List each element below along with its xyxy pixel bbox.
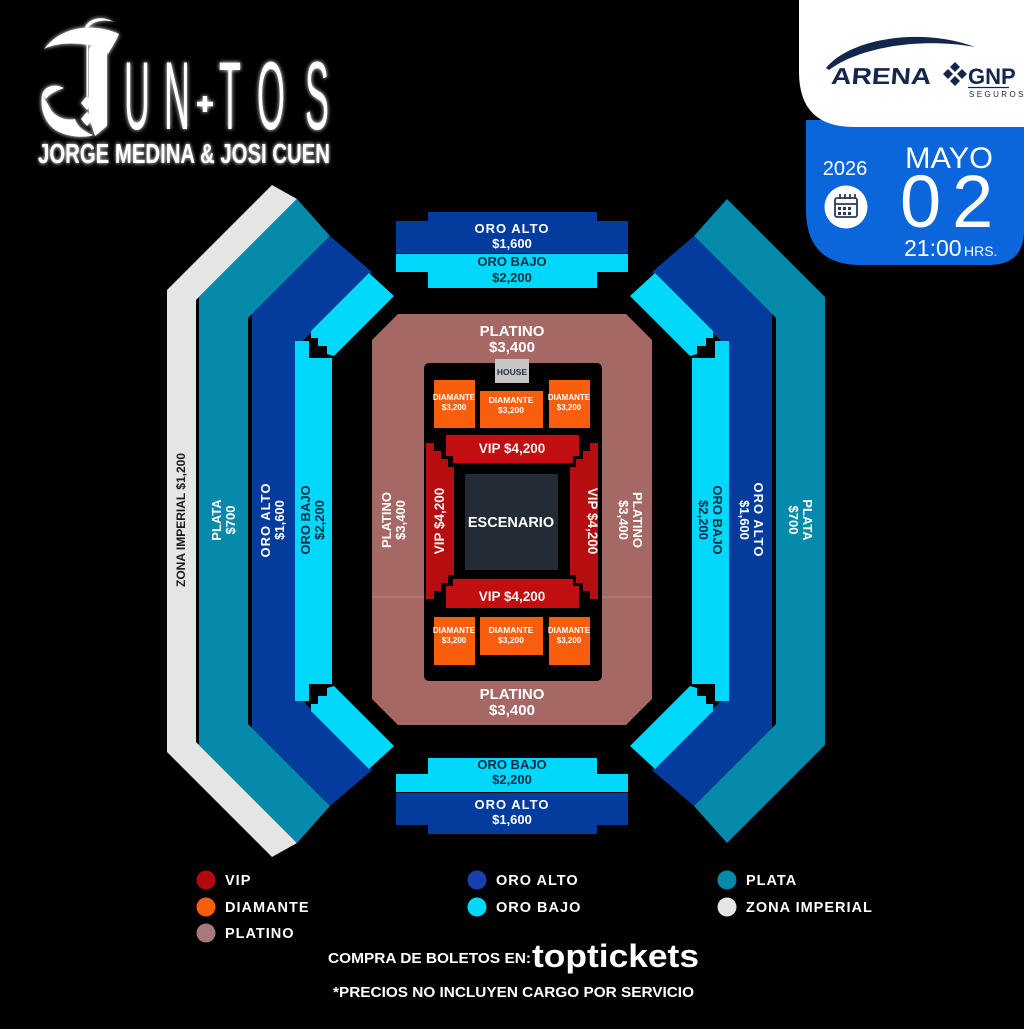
svg-text:T: T [219, 43, 241, 150]
svg-text:PLATA: PLATA [746, 873, 797, 889]
svg-text:PLATINO: PLATINO [379, 492, 394, 548]
svg-text:$3,400: $3,400 [393, 500, 408, 540]
svg-text:$3,400: $3,400 [489, 702, 535, 719]
svg-text:DIAMANTE: DIAMANTE [489, 625, 534, 635]
svg-text:$3,200: $3,200 [498, 635, 524, 645]
svg-text:$1,600: $1,600 [492, 236, 532, 251]
svg-text:ORO ALTO: ORO ALTO [475, 221, 550, 236]
svg-text:PLATINO: PLATINO [630, 492, 645, 548]
svg-text:ORO BAJO: ORO BAJO [477, 254, 546, 269]
svg-text:N: N [164, 43, 190, 150]
svg-text:ORO BAJO: ORO BAJO [496, 900, 581, 916]
svg-text:$3,400: $3,400 [616, 500, 631, 540]
svg-text:COMPRA DE BOLETOS EN:: COMPRA DE BOLETOS EN: [328, 951, 531, 967]
svg-text:$2,200: $2,200 [492, 270, 532, 285]
svg-text:U: U [124, 43, 150, 150]
svg-text:ORO ALTO: ORO ALTO [475, 797, 550, 812]
svg-text:ORO BAJO: ORO BAJO [298, 485, 313, 554]
svg-text:$700: $700 [223, 506, 238, 535]
svg-text:VIP $4,200: VIP $4,200 [479, 589, 546, 604]
svg-text:$2,200: $2,200 [492, 772, 532, 787]
svg-text:ARENA: ARENA [830, 63, 933, 89]
svg-text:02: 02 [900, 160, 1004, 243]
svg-text:21:00: 21:00 [904, 235, 962, 261]
svg-text:$3,200: $3,200 [442, 636, 467, 645]
svg-text:GNP: GNP [968, 64, 1016, 89]
svg-text:VIP $4,200: VIP $4,200 [432, 488, 447, 555]
svg-text:$2,200: $2,200 [312, 500, 327, 540]
svg-text:$3,200: $3,200 [442, 403, 467, 412]
svg-text:ORO ALTO: ORO ALTO [496, 873, 579, 889]
svg-text:PLATA: PLATA [209, 499, 224, 541]
svg-text:$1,600: $1,600 [737, 500, 752, 540]
svg-text:PLATINO: PLATINO [480, 686, 545, 703]
svg-text:ORO BAJO: ORO BAJO [710, 485, 725, 554]
svg-text:VIP $4,200: VIP $4,200 [585, 488, 600, 555]
svg-text:ORO ALTO: ORO ALTO [258, 483, 273, 558]
svg-text:2026: 2026 [823, 158, 868, 180]
svg-text:SEGUROS: SEGUROS [969, 90, 1024, 99]
svg-text:PLATINO: PLATINO [225, 926, 295, 942]
svg-text:toptickets: toptickets [532, 938, 699, 974]
svg-text:ESCENARIO: ESCENARIO [468, 515, 554, 531]
svg-text:S: S [305, 43, 329, 150]
svg-text:DIAMANTE: DIAMANTE [433, 393, 476, 402]
svg-text:JORGE MEDINA & JOSI CUEN: JORGE MEDINA & JOSI CUEN [38, 139, 330, 170]
svg-text:$3,400: $3,400 [489, 339, 535, 356]
svg-text:HOUSE: HOUSE [497, 367, 528, 377]
svg-text:$2,200: $2,200 [696, 500, 711, 540]
svg-text:$1,600: $1,600 [492, 812, 532, 827]
svg-text:DIAMANTE: DIAMANTE [548, 626, 591, 635]
svg-text:DIAMANTE: DIAMANTE [433, 626, 476, 635]
svg-text:PLATA: PLATA [800, 499, 815, 541]
svg-text:VIP: VIP [225, 873, 251, 889]
svg-text:DIAMANTE: DIAMANTE [548, 393, 591, 402]
svg-text:$3,200: $3,200 [557, 636, 582, 645]
svg-text:DIAMANTE: DIAMANTE [225, 900, 310, 916]
svg-text:$3,200: $3,200 [498, 405, 524, 415]
svg-text:PLATINO: PLATINO [480, 323, 545, 340]
svg-text:O: O [257, 43, 285, 150]
svg-text:$700: $700 [786, 506, 801, 535]
svg-text:HRS.: HRS. [964, 243, 997, 259]
svg-text:ZONA IMPERIAL $1,200: ZONA IMPERIAL $1,200 [174, 453, 188, 587]
svg-text:ZONA IMPERIAL: ZONA IMPERIAL [746, 900, 873, 916]
svg-text:DIAMANTE: DIAMANTE [489, 395, 534, 405]
svg-text:ORO BAJO: ORO BAJO [477, 757, 546, 772]
svg-text:ORO ALTO: ORO ALTO [751, 483, 766, 558]
svg-text:VIP $4,200: VIP $4,200 [479, 441, 546, 456]
svg-text:*PRECIOS NO INCLUYEN CARGO POR: *PRECIOS NO INCLUYEN CARGO POR SERVICIO [333, 985, 694, 1001]
svg-text:$3,200: $3,200 [557, 403, 582, 412]
svg-text:$1,600: $1,600 [272, 500, 287, 540]
